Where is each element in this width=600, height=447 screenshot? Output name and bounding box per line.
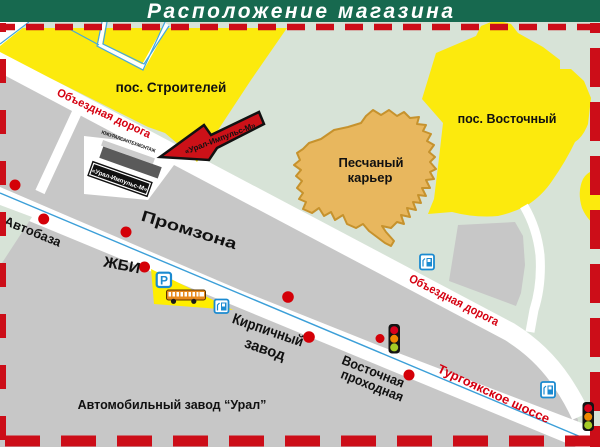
svg-text:P: P [160, 274, 168, 288]
svg-text:пос. Строителей: пос. Строителей [116, 80, 227, 95]
svg-text:Автомобильный завод “Урал”: Автомобильный завод “Урал” [78, 398, 267, 412]
svg-text:карьер: карьер [348, 170, 393, 185]
svg-text:пос. Восточный: пос. Восточный [458, 112, 557, 126]
svg-text:Расположение магазина: Расположение магазина [147, 0, 453, 23]
svg-text:Песчаный: Песчаный [338, 155, 403, 170]
